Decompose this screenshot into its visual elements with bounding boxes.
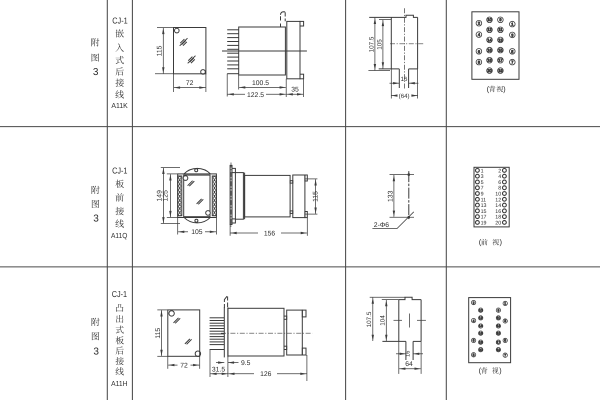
svg-text:17: 17 [498, 58, 502, 63]
svg-text:7: 7 [504, 353, 506, 357]
svg-text:20: 20 [479, 348, 483, 352]
svg-text:1: 1 [504, 302, 506, 306]
svg-text:125: 125 [163, 190, 170, 202]
svg-text:8: 8 [473, 353, 475, 357]
svg-text:115: 115 [155, 328, 162, 339]
svg-text:105: 105 [191, 229, 203, 236]
svg-text:3: 3 [93, 347, 99, 358]
svg-text:16: 16 [401, 76, 408, 83]
svg-text:11: 11 [497, 316, 501, 320]
svg-text:3: 3 [511, 32, 513, 37]
svg-text:115: 115 [157, 45, 164, 56]
svg-text:6: 6 [478, 49, 480, 54]
svg-text:5: 5 [511, 49, 513, 54]
svg-text:31.5: 31.5 [212, 366, 225, 373]
svg-text:1: 1 [511, 22, 513, 27]
svg-text:107.5: 107.5 [368, 36, 375, 52]
svg-text:A11K: A11K [111, 101, 128, 110]
svg-text:107.5: 107.5 [366, 311, 373, 327]
svg-text:3: 3 [93, 67, 99, 78]
svg-text:72: 72 [180, 362, 188, 369]
svg-text:100.5: 100.5 [252, 80, 269, 87]
svg-text:19: 19 [498, 68, 502, 73]
svg-text:126: 126 [260, 371, 272, 378]
svg-text:133: 133 [387, 190, 394, 202]
svg-text:19: 19 [481, 220, 487, 226]
svg-text:72: 72 [186, 80, 194, 87]
svg-text:A11Q: A11Q [111, 231, 128, 240]
svg-text:A11H: A11H [111, 379, 127, 388]
svg-text:(64): (64) [399, 93, 410, 100]
svg-text:16: 16 [487, 48, 491, 53]
svg-text:10: 10 [479, 308, 483, 312]
svg-text:3: 3 [504, 319, 506, 323]
svg-text:CJ-1: CJ-1 [112, 15, 128, 25]
svg-text:35: 35 [291, 87, 299, 94]
svg-text:2-Φ6: 2-Φ6 [374, 222, 389, 229]
svg-text:16: 16 [479, 331, 483, 335]
svg-text:19: 19 [497, 348, 501, 352]
svg-text:18: 18 [479, 340, 483, 344]
svg-text:9.5: 9.5 [241, 360, 251, 367]
svg-text:2: 2 [473, 301, 475, 305]
svg-text:15: 15 [498, 48, 502, 53]
svg-text:3: 3 [93, 214, 99, 225]
svg-text:8: 8 [478, 60, 480, 65]
svg-text:CJ-1: CJ-1 [112, 166, 128, 176]
svg-text:64: 64 [405, 361, 413, 368]
svg-text:18: 18 [487, 58, 491, 63]
svg-text:13: 13 [497, 324, 501, 328]
svg-text:14: 14 [479, 324, 483, 328]
svg-text:CJ-1: CJ-1 [112, 289, 128, 299]
svg-text:9: 9 [499, 17, 501, 22]
svg-text:17: 17 [497, 340, 501, 344]
svg-text:105: 105 [377, 39, 384, 50]
svg-text:2: 2 [478, 21, 480, 26]
svg-text:104: 104 [380, 315, 387, 326]
svg-text:115: 115 [313, 191, 320, 202]
svg-text:9: 9 [497, 308, 499, 312]
svg-text:5: 5 [504, 339, 506, 343]
svg-text:13: 13 [498, 37, 502, 42]
svg-text:20: 20 [495, 220, 501, 226]
svg-text:6: 6 [473, 339, 475, 343]
svg-text:7: 7 [511, 60, 513, 65]
svg-text:12: 12 [487, 27, 491, 32]
svg-text:122.5: 122.5 [247, 92, 264, 99]
svg-text:11: 11 [498, 27, 502, 32]
svg-text:156: 156 [264, 231, 276, 238]
svg-text:15: 15 [497, 331, 501, 335]
svg-text:12: 12 [479, 316, 483, 320]
svg-text:16: 16 [406, 351, 412, 357]
svg-text:4: 4 [473, 319, 475, 323]
